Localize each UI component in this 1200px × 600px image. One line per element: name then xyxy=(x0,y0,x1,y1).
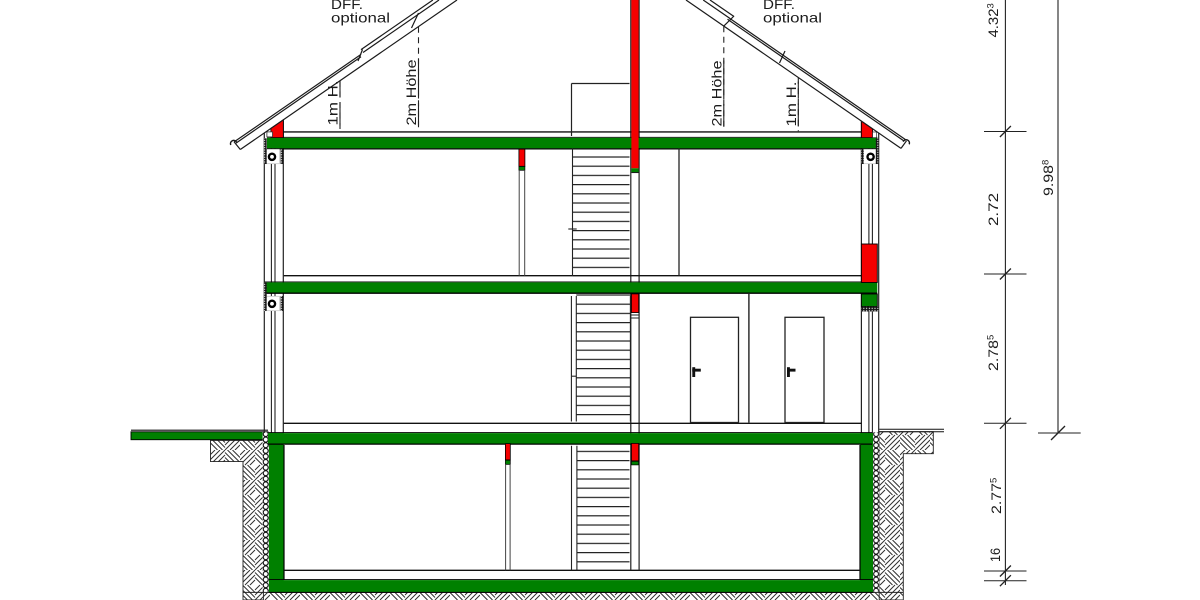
svg-text:2.785: 2.785 xyxy=(986,335,1002,371)
svg-text:16: 16 xyxy=(988,548,1003,562)
svg-text:2m Höhe: 2m Höhe xyxy=(708,60,724,126)
svg-text:2.775: 2.775 xyxy=(989,478,1005,514)
svg-text:1m H.: 1m H. xyxy=(783,82,799,127)
svg-text:optional: optional xyxy=(763,10,822,26)
svg-text:9.988: 9.988 xyxy=(1041,160,1057,196)
svg-text:2.72: 2.72 xyxy=(986,193,1001,226)
svg-text:optional: optional xyxy=(331,10,390,26)
svg-text:2m Höhe: 2m Höhe xyxy=(403,59,419,125)
svg-text:1m H.: 1m H. xyxy=(325,81,341,126)
